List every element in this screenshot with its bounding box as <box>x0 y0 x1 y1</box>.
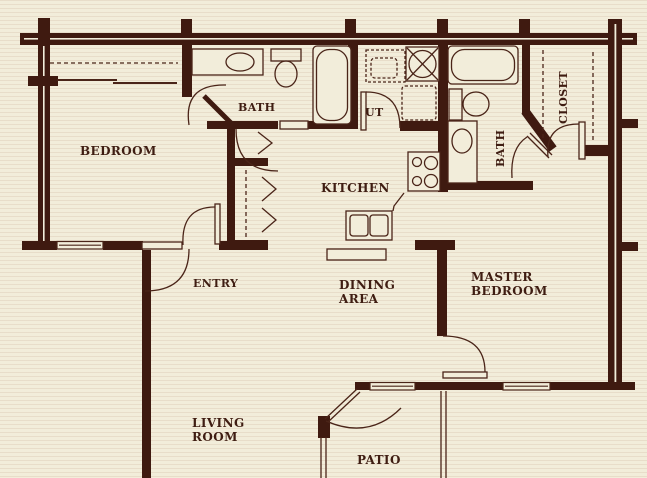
wall-stub <box>519 19 530 34</box>
room-label-patio: PATIO <box>357 453 401 467</box>
bath1-vanity <box>192 49 263 75</box>
room-label-kitchen: KITCHEN <box>321 181 390 195</box>
floor-plan: BEDROOM BATH UT KITCHEN BATH CLOSET ENTR… <box>0 0 647 478</box>
room-label-dining-2: AREA <box>338 292 379 306</box>
master-door-arc <box>443 336 485 372</box>
wall-stub <box>620 119 638 128</box>
wall-living-west <box>142 250 151 478</box>
room-label-bath1: BATH <box>238 101 275 114</box>
room-label-living-1: LIVING <box>192 416 245 430</box>
wall-stub <box>437 19 448 34</box>
patio-door-post <box>318 416 330 438</box>
bedroom-door-arc <box>183 207 215 245</box>
wall-closet2-stub <box>585 145 610 156</box>
bath2-door-arc <box>512 137 527 178</box>
wall-stub <box>345 19 356 34</box>
patio-door-leaf <box>325 389 357 419</box>
bifold-door-icon <box>262 208 276 232</box>
room-label-master-2: BEDROOM <box>471 284 548 298</box>
bath1-toilet-bowl-icon <box>275 61 297 87</box>
bath2-vanity <box>448 121 477 183</box>
bath1-door-arc <box>188 85 226 125</box>
master-door-leaf <box>443 372 487 378</box>
bifold-door-icon <box>262 177 276 201</box>
room-label-bath2: BATH <box>494 130 507 167</box>
wall-left-closet-stub <box>28 76 58 86</box>
room-label-living-2: ROOM <box>192 430 238 444</box>
wall-bedroom-south <box>103 241 143 250</box>
wall-right-stripe <box>615 24 617 382</box>
bath2-toilet-bowl-icon <box>463 92 489 116</box>
windows <box>57 242 550 391</box>
patio-door-leaf <box>328 392 360 422</box>
wall-closet-divider <box>233 158 268 166</box>
wall-hall-column <box>227 121 235 248</box>
patio-door-arc <box>326 408 401 428</box>
kitchen-bar-counter <box>327 249 386 260</box>
utility-dryer-dashed <box>402 86 436 120</box>
kitchen-counter-edge <box>393 193 404 211</box>
closet2-door-arc <box>548 124 579 157</box>
bath1-tub <box>313 46 351 124</box>
bath2-tub <box>448 46 518 84</box>
room-labels: BEDROOM BATH UT KITCHEN BATH CLOSET ENTR… <box>80 71 570 467</box>
utility-counter-dashed <box>366 50 405 82</box>
wall-bath1-south-west <box>207 121 278 129</box>
bath1-toilet-tank <box>271 49 301 61</box>
closet2-door-leaf <box>579 122 585 159</box>
bedroom-door-leaf <box>215 204 220 244</box>
room-label-entry: ENTRY <box>193 277 238 290</box>
wall-top-stripe <box>24 38 633 40</box>
wall-bedroom-bath <box>182 44 192 97</box>
room-label-dining-1: DINING <box>339 278 395 292</box>
kitchen-door-leaf <box>280 121 308 129</box>
wall-master-west <box>437 250 447 336</box>
wall-stub <box>620 242 638 251</box>
floor-plan-svg: BEDROOM BATH UT KITCHEN BATH CLOSET ENTR… <box>0 0 647 478</box>
bifold-door-icon <box>258 132 272 154</box>
room-label-closet: CLOSET <box>557 71 570 124</box>
room-label-utility: UT <box>365 106 384 119</box>
entry-door-arc <box>145 249 189 291</box>
room-label-master-1: MASTER <box>471 270 533 284</box>
wall-closet2-west <box>522 44 530 114</box>
room-label-bedroom: BEDROOM <box>80 144 157 158</box>
wall-hall-bottom <box>235 240 268 250</box>
wall-stub <box>181 19 192 34</box>
bath1-door-leaf <box>204 96 231 123</box>
entry-door-leaf <box>142 242 182 249</box>
utility-appliance-dashed <box>371 58 397 78</box>
wall-bedroom-south <box>22 241 57 250</box>
wall-master-north <box>415 240 455 250</box>
bath2-toilet-tank <box>449 89 462 120</box>
